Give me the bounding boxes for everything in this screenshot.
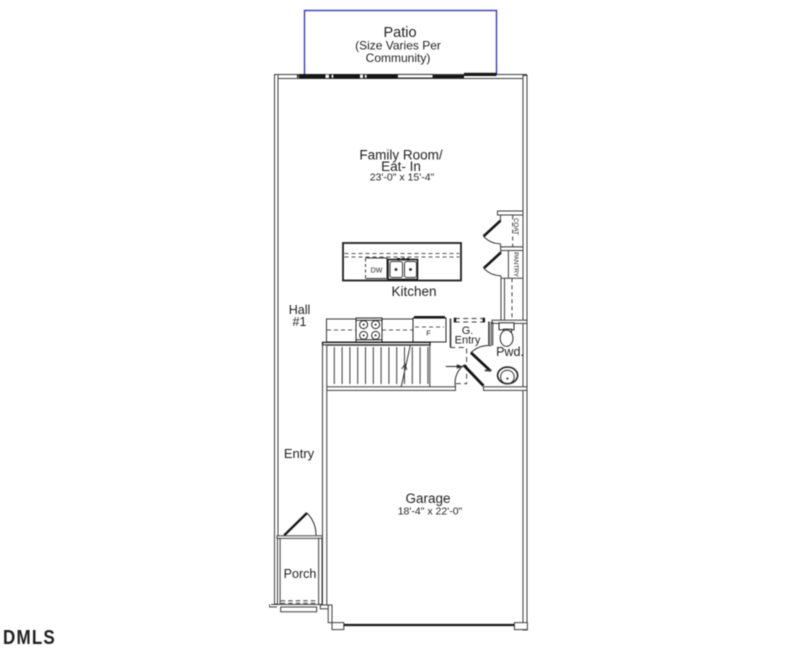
svg-text:#1: #1 <box>293 315 307 329</box>
svg-text:Kitchen: Kitchen <box>391 284 436 299</box>
svg-text:F: F <box>426 329 431 338</box>
svg-text:Entry: Entry <box>455 335 481 347</box>
svg-text:DMLS: DMLS <box>3 627 56 650</box>
svg-text:DW: DW <box>371 268 383 275</box>
svg-text:Pwd.: Pwd. <box>496 345 524 359</box>
svg-text:Porch: Porch <box>284 567 317 581</box>
svg-text:PANTRY: PANTRY <box>512 252 519 278</box>
svg-text:Garage: Garage <box>405 491 450 506</box>
svg-text:Entry: Entry <box>284 446 315 461</box>
svg-text:18'-4" x 22'-0": 18'-4" x 22'-0" <box>398 506 463 518</box>
svg-text:Community): Community) <box>366 51 431 65</box>
svg-text:23'-0" x 15'-4": 23'-0" x 15'-4" <box>370 172 435 184</box>
svg-text:COAT: COAT <box>512 218 519 235</box>
